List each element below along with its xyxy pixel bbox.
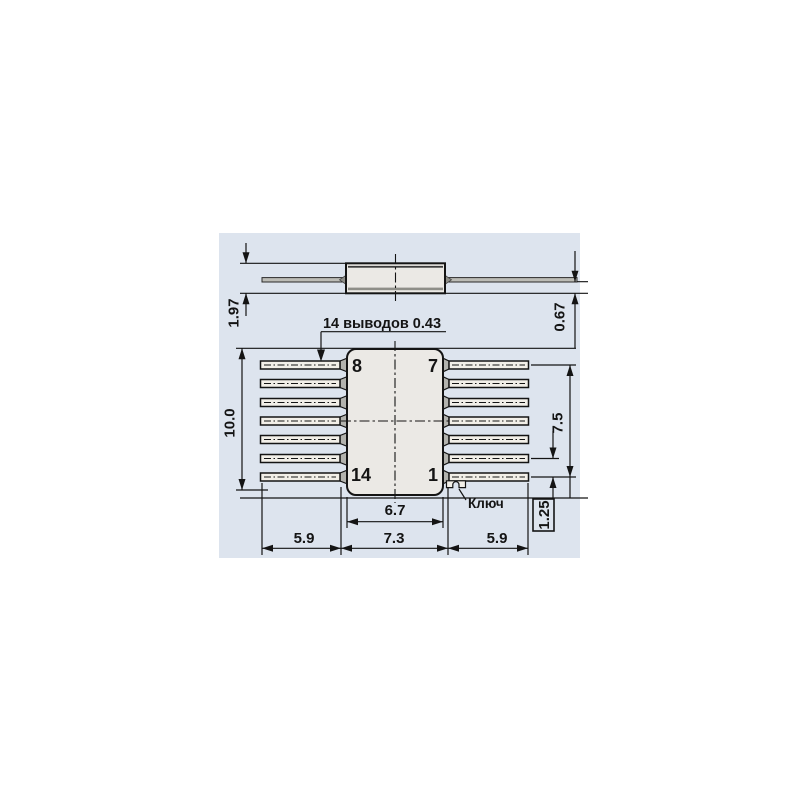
dim-6-7: 6.7	[385, 502, 406, 519]
side-lead-right	[445, 278, 577, 282]
dim-1-97: 1.97	[225, 298, 242, 327]
boxed-pitch-dimension: 1.25	[533, 499, 554, 531]
pin-number-8: 8	[352, 356, 362, 376]
dim-5-9-right: 5.9	[487, 530, 508, 547]
dim-1-25: 1.25	[536, 500, 553, 529]
ic-package-drawing: 8 7 14 1 1.97 0.67 14 выводов 0.43 10.0 …	[0, 0, 800, 800]
dim-0-67: 0.67	[551, 302, 568, 331]
plan-body: 8 7 14 1	[341, 341, 449, 503]
dim-7-3: 7.3	[384, 530, 405, 547]
lead-count-note: 14 выводов 0.43	[323, 316, 441, 332]
key-label: Ключ	[468, 496, 504, 511]
page: 8 7 14 1 1.97 0.67 14 выводов 0.43 10.0 …	[0, 0, 800, 800]
side-lead-left	[262, 278, 346, 282]
pin-number-14: 14	[351, 465, 371, 485]
pin-number-7: 7	[428, 356, 438, 376]
dim-7-5: 7.5	[549, 413, 566, 434]
dim-5-9-left: 5.9	[294, 530, 315, 547]
dim-10-0: 10.0	[221, 408, 238, 437]
pin-number-1: 1	[428, 465, 438, 485]
